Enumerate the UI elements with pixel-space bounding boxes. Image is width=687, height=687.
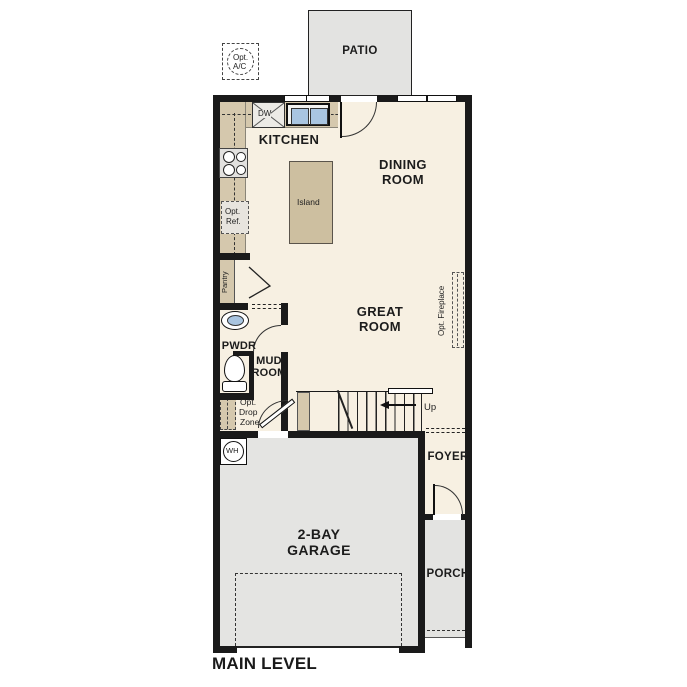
burner: [236, 165, 246, 175]
island-label: Island: [297, 198, 320, 207]
drop-zone-bench-line: [227, 398, 228, 429]
kitchen-window: [284, 95, 330, 102]
top-wall-a: [213, 95, 284, 102]
porch-label: PORCH: [426, 569, 469, 581]
garage-right-wall: [418, 431, 425, 653]
opt-fireplace-label: Opt. Fireplace: [438, 272, 449, 350]
pwdr-label: PWDR: [222, 341, 256, 352]
drop-zone-label-1: Opt.: [240, 398, 256, 407]
opt-ac-label-2: A/C: [233, 63, 246, 71]
kitchen-sink: [286, 103, 330, 126]
garage-top-wall-left: [213, 431, 258, 438]
opt-ac-label-1: Opt.: [233, 54, 248, 62]
up-arrow-head: [380, 401, 389, 409]
kitchen-window-divider: [306, 95, 307, 102]
garage-top-wall-right: [288, 431, 425, 438]
dining-label-1: DINING: [379, 158, 427, 171]
garage-bottom-stub-right: [399, 646, 425, 653]
opt-fireplace-box: [452, 272, 464, 348]
mud-west-wall-upper: [281, 303, 288, 325]
pantry-door: [248, 266, 274, 300]
range-cooktop: [219, 148, 248, 178]
porch-edge-line: [425, 637, 465, 638]
garage-bottom-stub-left: [213, 646, 237, 653]
garage-label-1: 2-BAY: [298, 527, 341, 541]
toilet-tank: [222, 381, 247, 392]
top-wall-b: [330, 95, 341, 102]
plan-title: MAIN LEVEL: [212, 654, 317, 674]
garage-door-header: [237, 646, 399, 648]
sink-basin-left: [291, 108, 309, 125]
mud-label-1: MUD: [256, 356, 282, 367]
mud-room-opening-dashed: [252, 304, 282, 309]
garage-label-2: GARAGE: [287, 543, 351, 557]
garage-door-dashed: [235, 573, 402, 646]
kitchen-label: KITCHEN: [259, 133, 320, 146]
opt-ref-label-1: Opt.: [225, 208, 240, 216]
floor-plan: DW Opt. Ref. Island Pantry Opt. Fireplac…: [0, 0, 687, 687]
mud-label-2: ROOM: [251, 368, 286, 379]
dining-window-2: [427, 95, 457, 102]
upper-cabinet-dash-h: [222, 114, 251, 115]
burner: [223, 164, 235, 176]
sink-basin-right: [310, 108, 328, 125]
top-wall-c: [377, 95, 397, 102]
drop-zone-label-3: Zone: [240, 418, 259, 427]
up-arrow-shaft: [389, 404, 416, 406]
burner: [223, 151, 235, 163]
pwdr-sink-basin: [227, 315, 244, 326]
patio-label: PATIO: [342, 46, 377, 58]
foyer-label: FOYER: [427, 452, 468, 464]
pwdr-sink: [221, 311, 249, 330]
drop-zone-label-2: Drop: [239, 408, 257, 417]
left-wall: [213, 95, 220, 653]
stairs-dashed-pair: [371, 392, 379, 431]
foyer-opening-dashed: [426, 428, 465, 434]
upper-cabinet-dash-right: [331, 114, 338, 115]
pantry-top-wall: [213, 253, 250, 260]
great-label-2: ROOM: [359, 320, 401, 333]
drop-zone-bench: [220, 397, 236, 430]
opt-ref-label-2: Ref.: [226, 218, 241, 226]
opt-fireplace-inner-dash: [457, 274, 458, 346]
porch-dashed-line: [427, 630, 465, 631]
pantry-bottom-wall: [213, 303, 248, 310]
dining-label-2: ROOM: [382, 173, 424, 186]
stairs-handrail: [388, 388, 433, 394]
dining-window-1: [397, 95, 427, 102]
water-heater-label: WH: [226, 447, 239, 455]
up-label: Up: [424, 403, 436, 413]
toilet-bowl: [224, 355, 245, 382]
right-wall: [465, 95, 472, 648]
stair-side-wall: [297, 392, 310, 431]
pantry-label: Pantry: [221, 261, 232, 303]
burner: [236, 152, 246, 162]
foyer-bottom-wall-left: [418, 514, 433, 520]
dishwasher-label: DW: [258, 110, 271, 118]
great-label-1: GREAT: [357, 305, 404, 318]
